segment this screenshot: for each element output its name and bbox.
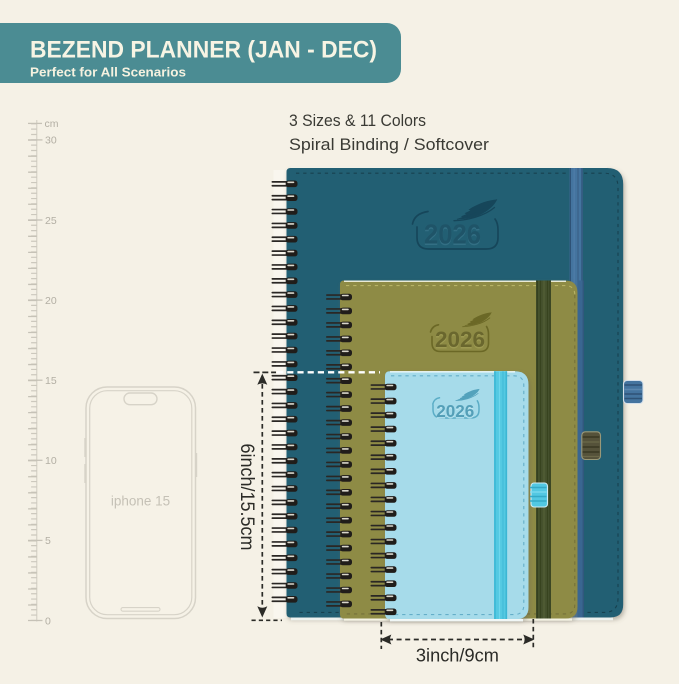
svg-text:15: 15 xyxy=(45,375,57,387)
svg-text:3 Sizes & 11 Colors: 3 Sizes & 11 Colors xyxy=(289,111,426,130)
svg-text:Perfect for All Scenarios: Perfect for All Scenarios xyxy=(30,66,186,80)
svg-text:30: 30 xyxy=(45,135,57,147)
svg-text:2026: 2026 xyxy=(436,401,474,421)
svg-text:cm: cm xyxy=(45,118,59,130)
svg-text:5: 5 xyxy=(45,535,51,547)
svg-text:iphone 15: iphone 15 xyxy=(111,494,170,509)
svg-text:2026: 2026 xyxy=(424,219,481,250)
svg-text:BEZEND PLANNER (JAN - DEC): BEZEND PLANNER (JAN - DEC) xyxy=(30,37,377,64)
svg-text:6inch/15.5cm: 6inch/15.5cm xyxy=(236,444,257,551)
svg-text:0: 0 xyxy=(45,615,51,627)
svg-text:3inch/9cm: 3inch/9cm xyxy=(416,645,499,666)
svg-text:2026: 2026 xyxy=(435,327,485,352)
svg-text:Spiral Binding / Softcover: Spiral Binding / Softcover xyxy=(289,135,489,154)
svg-text:25: 25 xyxy=(45,215,57,227)
svg-text:20: 20 xyxy=(45,295,57,307)
svg-text:10: 10 xyxy=(45,455,57,467)
